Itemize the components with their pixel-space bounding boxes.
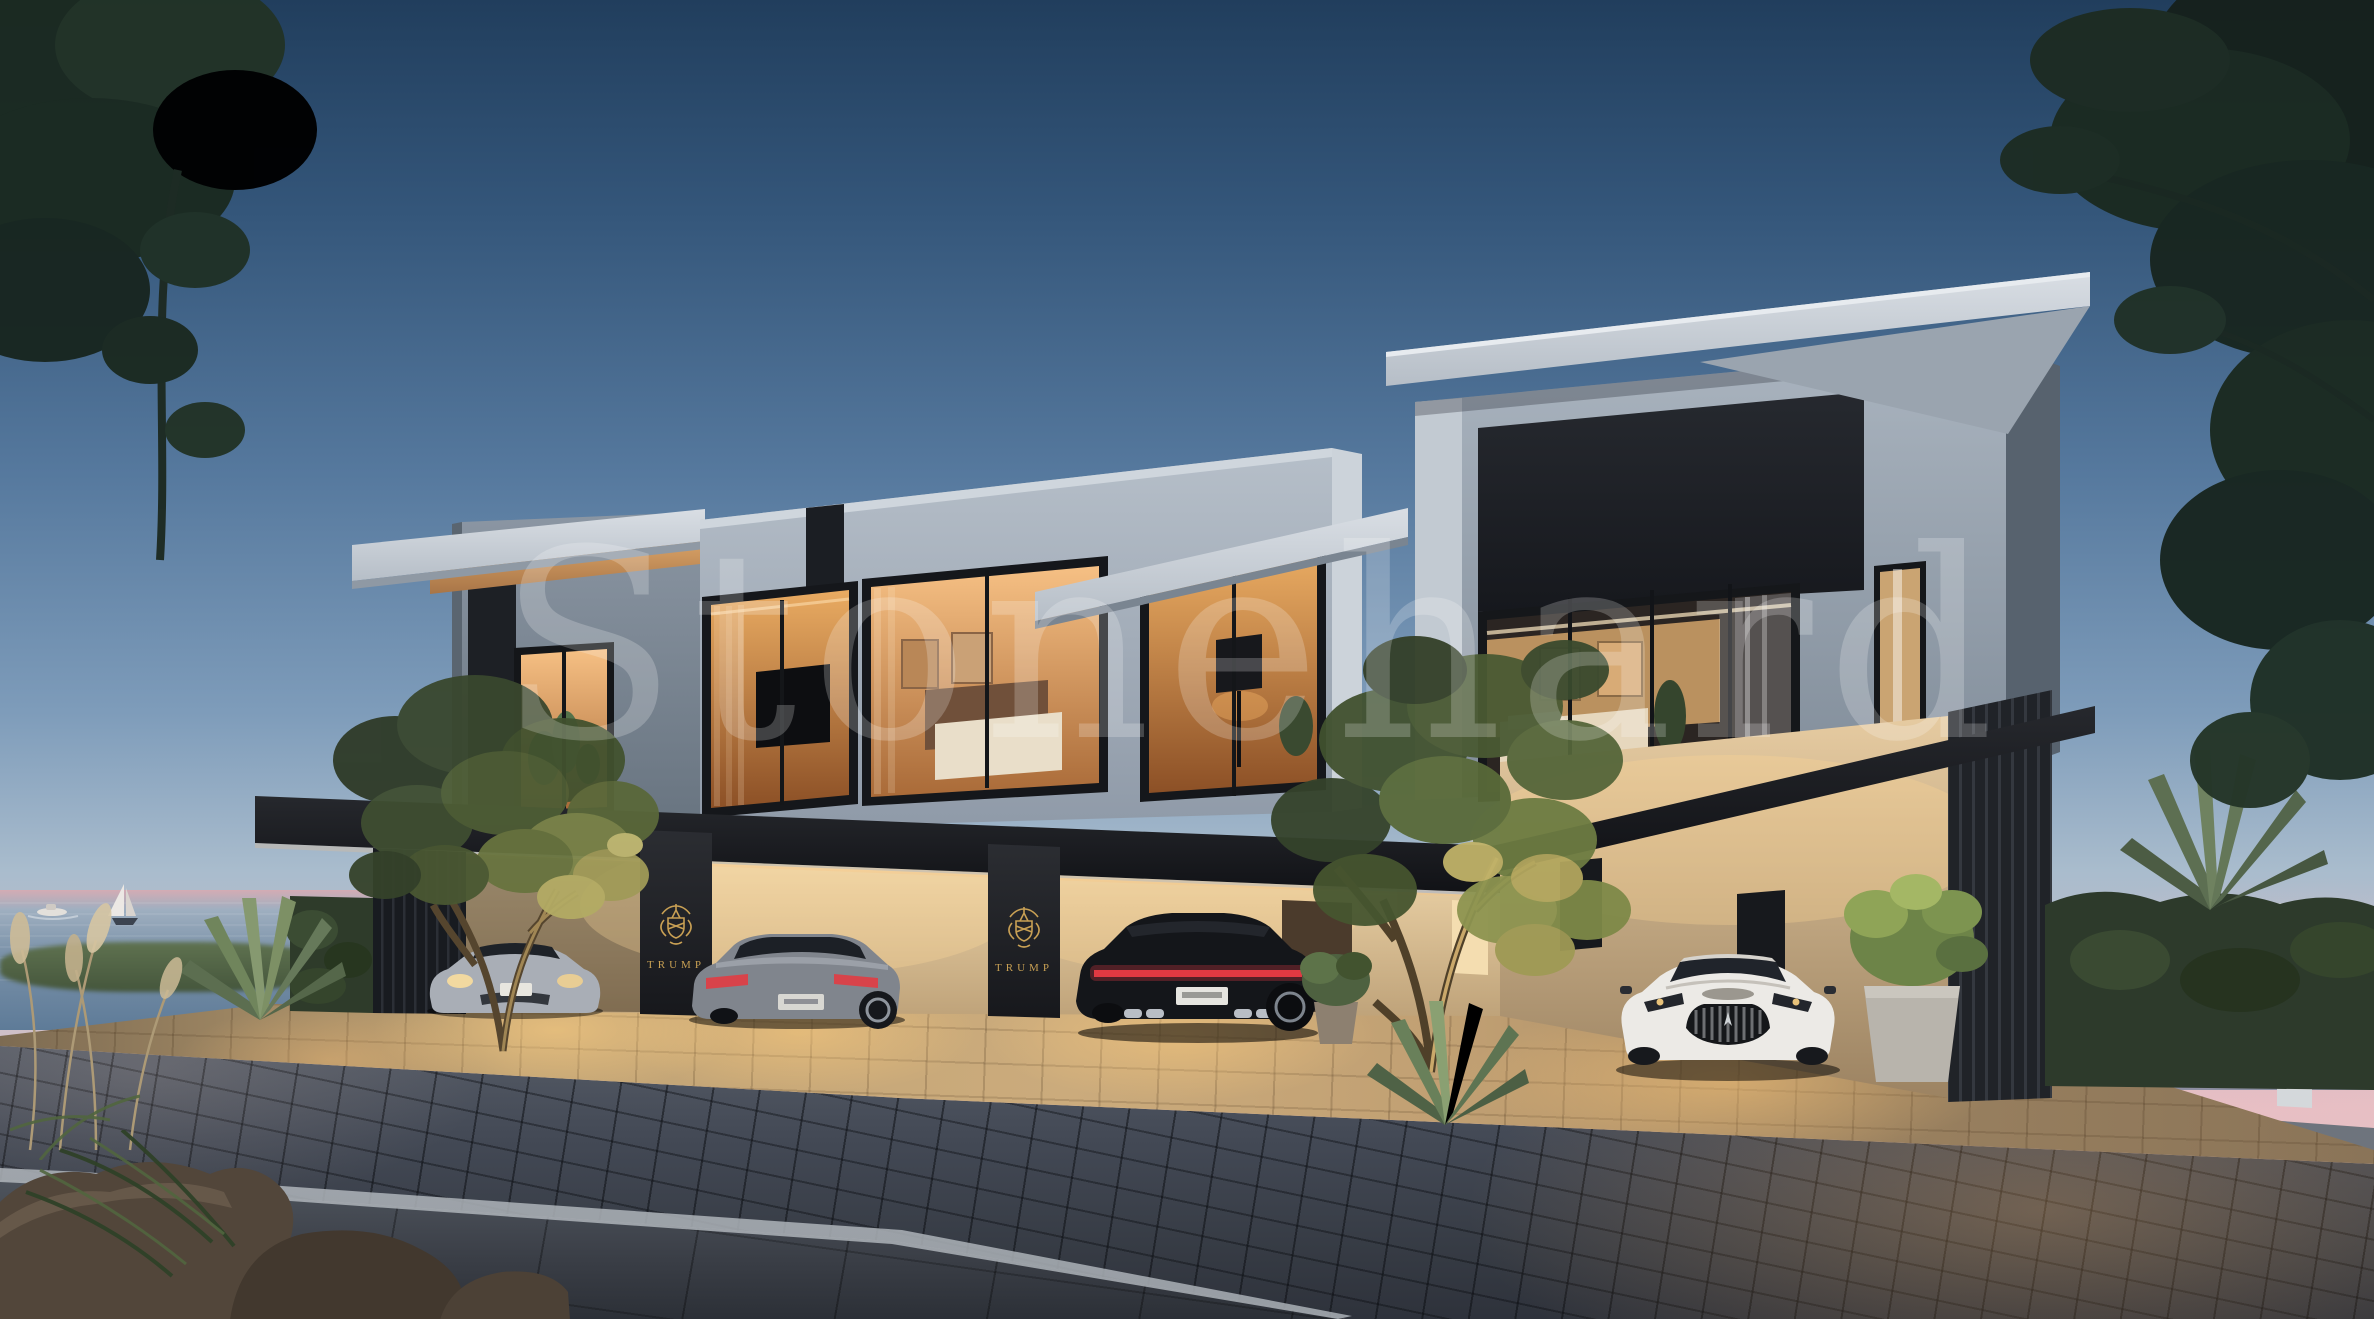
heraldic-crest-icon xyxy=(1002,901,1046,955)
trump-crest-1: TRUMP xyxy=(636,898,716,971)
architectural-render: TRUMP TRUMP Stonehard xyxy=(0,0,2374,1319)
dark-inset-panel xyxy=(1478,392,1864,612)
boulders xyxy=(0,1130,580,1319)
corner-tree-top-left xyxy=(0,0,540,620)
potted-plant-small xyxy=(1280,940,1390,1050)
bedroom-window-1 xyxy=(702,581,858,818)
car-grey-coupe xyxy=(682,918,912,1030)
grasses-pampas xyxy=(0,860,260,1160)
corner-tree-top-right xyxy=(1920,0,2374,880)
trump-wordmark-2: TRUMP xyxy=(984,962,1064,974)
trump-wordmark-1: TRUMP xyxy=(636,959,716,971)
potted-plant-large xyxy=(1812,868,2012,1088)
trump-crest-2: TRUMP xyxy=(984,901,1064,974)
heraldic-crest-icon xyxy=(654,898,698,952)
uplit-tree-left xyxy=(325,665,665,1060)
